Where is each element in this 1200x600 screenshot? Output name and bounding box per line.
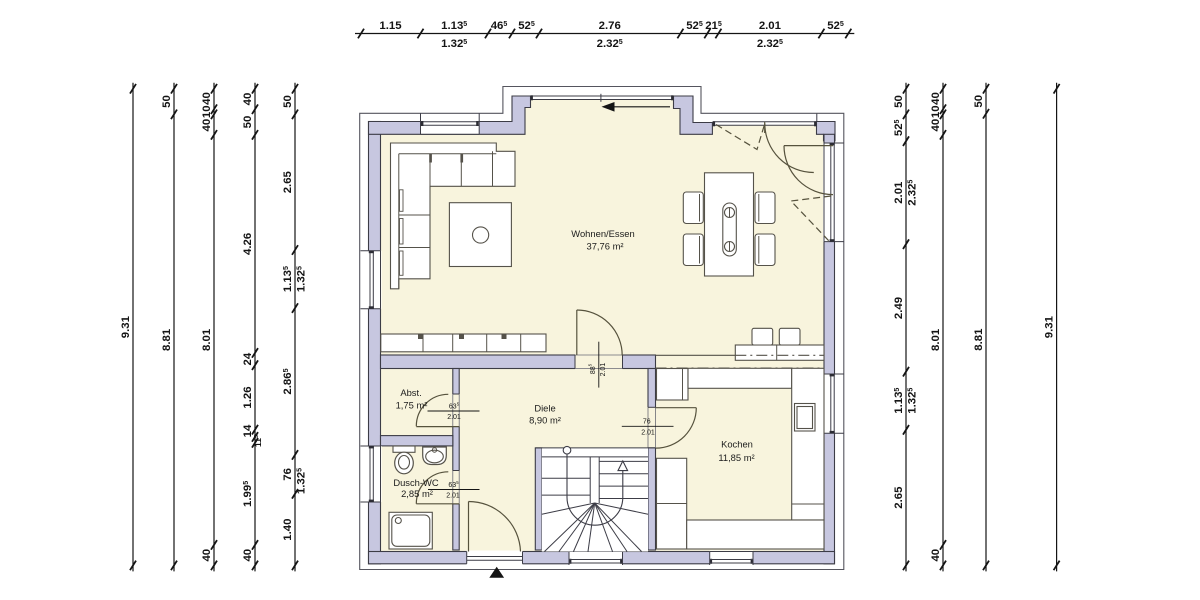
svg-text:9.31: 9.31 — [1044, 315, 1056, 338]
svg-text:Wohnen/Essen: Wohnen/Essen — [571, 228, 634, 239]
svg-text:50: 50 — [161, 95, 173, 108]
svg-text:1,75 m²: 1,75 m² — [396, 400, 428, 411]
svg-text:1.995: 1.995 — [242, 481, 254, 507]
svg-text:40: 40 — [201, 119, 213, 132]
svg-text:2.65: 2.65 — [893, 486, 905, 509]
svg-text:14: 14 — [242, 424, 254, 437]
svg-text:2.65: 2.65 — [282, 170, 294, 193]
svg-text:1.325: 1.325 — [295, 266, 307, 292]
svg-text:40: 40 — [930, 92, 942, 105]
svg-text:1.135: 1.135 — [282, 266, 294, 292]
svg-text:1.26: 1.26 — [242, 386, 254, 408]
svg-text:8,90 m²: 8,90 m² — [529, 415, 561, 426]
svg-text:2.01: 2.01 — [893, 181, 905, 204]
svg-text:525: 525 — [827, 20, 844, 32]
svg-text:Diele: Diele — [534, 403, 555, 414]
svg-text:1.325: 1.325 — [906, 388, 918, 414]
svg-text:2.01: 2.01 — [641, 430, 655, 437]
svg-text:1.325: 1.325 — [441, 38, 467, 50]
svg-text:525: 525 — [686, 20, 703, 32]
svg-text:Kochen: Kochen — [721, 439, 753, 450]
svg-text:50: 50 — [282, 95, 294, 108]
svg-text:4.26: 4.26 — [242, 233, 254, 255]
svg-text:215: 215 — [705, 20, 722, 32]
svg-text:76: 76 — [643, 419, 651, 426]
svg-text:1.15: 1.15 — [379, 20, 402, 32]
svg-text:1.135: 1.135 — [441, 20, 467, 32]
svg-text:2.325: 2.325 — [757, 38, 783, 50]
svg-text:2.01: 2.01 — [759, 20, 782, 32]
svg-text:50: 50 — [973, 95, 985, 108]
svg-text:2.01: 2.01 — [600, 363, 607, 377]
svg-text:2.865: 2.865 — [282, 368, 294, 394]
svg-text:465: 465 — [491, 20, 508, 32]
svg-text:11,85 m²: 11,85 m² — [718, 452, 754, 463]
svg-text:24: 24 — [242, 352, 254, 365]
svg-text:40: 40 — [930, 119, 942, 132]
svg-text:40: 40 — [201, 92, 213, 105]
svg-text:525: 525 — [518, 20, 535, 32]
svg-text:8.81: 8.81 — [973, 328, 985, 351]
svg-text:40: 40 — [242, 93, 254, 106]
svg-text:2.325: 2.325 — [597, 38, 623, 50]
svg-text:50: 50 — [893, 95, 905, 108]
svg-text:2.49: 2.49 — [893, 297, 905, 319]
svg-text:40: 40 — [930, 549, 942, 562]
svg-text:2.325: 2.325 — [906, 180, 918, 206]
svg-text:76: 76 — [282, 468, 294, 481]
svg-text:525: 525 — [893, 119, 905, 136]
svg-text:115: 115 — [253, 435, 263, 447]
svg-text:8.81: 8.81 — [161, 328, 173, 351]
svg-text:2.01: 2.01 — [446, 493, 460, 500]
svg-text:1.325: 1.325 — [295, 468, 307, 494]
svg-text:8.01: 8.01 — [930, 328, 942, 351]
svg-text:40: 40 — [242, 549, 254, 562]
svg-text:9.31: 9.31 — [120, 315, 132, 338]
svg-text:10: 10 — [201, 105, 213, 118]
svg-text:Abst.: Abst. — [400, 387, 421, 398]
svg-text:Dusch-WC: Dusch-WC — [393, 477, 439, 488]
svg-text:37,76 m²: 37,76 m² — [587, 241, 624, 252]
svg-text:1.40: 1.40 — [282, 519, 294, 541]
svg-text:2.01: 2.01 — [447, 414, 461, 421]
svg-text:10: 10 — [930, 105, 942, 118]
svg-text:2.76: 2.76 — [599, 20, 621, 32]
svg-text:50: 50 — [242, 116, 254, 129]
svg-text:1.135: 1.135 — [893, 388, 905, 414]
svg-text:8.01: 8.01 — [201, 328, 213, 351]
svg-text:40: 40 — [201, 549, 213, 562]
